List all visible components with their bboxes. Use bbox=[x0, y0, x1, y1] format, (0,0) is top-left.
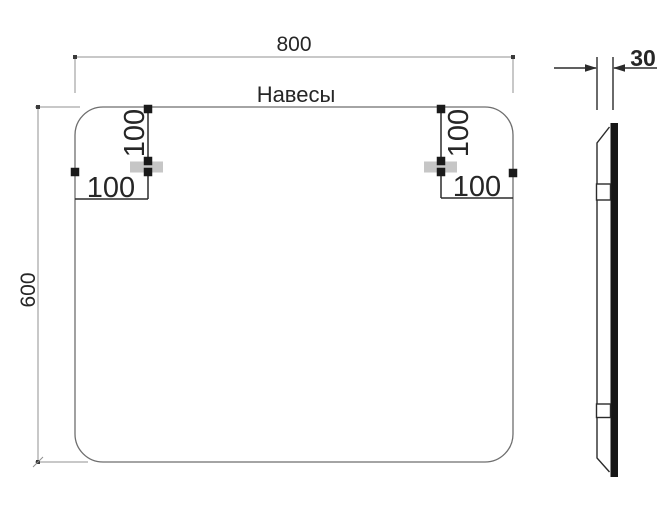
width-dim-label: 800 bbox=[276, 33, 311, 56]
front-view-outline bbox=[75, 107, 513, 462]
right-edge-marker bbox=[509, 169, 518, 178]
hangers-title: Навесы bbox=[257, 82, 336, 107]
left-hanger-group: 100 100 bbox=[71, 105, 163, 204]
right-hanger-group: 100 100 bbox=[424, 105, 517, 203]
thickness-dimension: 30 bbox=[554, 45, 657, 110]
width-dim-end-right bbox=[511, 55, 515, 59]
right-hanger-lower-point-marker bbox=[437, 168, 446, 177]
width-dim-end-left bbox=[73, 55, 77, 59]
side-view-bottom-bracket bbox=[597, 404, 611, 418]
left-edge-marker bbox=[71, 168, 80, 177]
technical-drawing: 800 600 Навесы 100 100 bbox=[0, 0, 668, 500]
thickness-arrow-left-icon bbox=[585, 64, 597, 72]
side-view bbox=[597, 123, 619, 477]
height-dimension: 600 bbox=[17, 105, 88, 467]
side-view-glass-bar bbox=[611, 123, 619, 477]
left-hanger-horizontal-offset-label: 100 bbox=[87, 172, 135, 204]
height-dim-end-top bbox=[36, 105, 40, 109]
right-hanger-vertical-offset-label: 100 bbox=[443, 109, 475, 157]
height-dim-label: 600 bbox=[17, 272, 40, 307]
left-hanger-vertical-offset-label: 100 bbox=[119, 109, 151, 157]
side-view-top-bracket bbox=[597, 184, 611, 200]
thickness-arrow-right-icon bbox=[613, 64, 625, 72]
right-hanger-horizontal-offset-label: 100 bbox=[453, 171, 501, 203]
thickness-label: 30 bbox=[630, 45, 656, 71]
side-view-body-outline bbox=[597, 127, 610, 472]
drawing-svg: 800 600 Навесы 100 100 bbox=[0, 0, 668, 500]
left-hanger-lower-point-marker bbox=[144, 168, 153, 177]
